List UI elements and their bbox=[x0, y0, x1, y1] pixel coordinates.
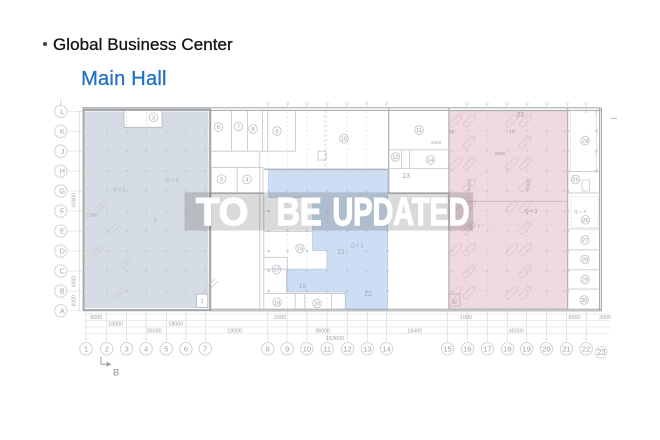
svg-text:6000: 6000 bbox=[72, 276, 78, 287]
svg-text:11: 11 bbox=[416, 128, 422, 134]
svg-text:8: 8 bbox=[266, 345, 270, 354]
svg-text:2: 2 bbox=[105, 345, 109, 354]
svg-text:22: 22 bbox=[364, 291, 372, 298]
svg-text:L: L bbox=[60, 107, 64, 116]
svg-text:27: 27 bbox=[582, 238, 588, 244]
svg-text:16: 16 bbox=[463, 345, 472, 354]
svg-text:26: 26 bbox=[582, 218, 588, 224]
svg-text:14: 14 bbox=[382, 345, 391, 354]
svg-text:Q = 3: Q = 3 bbox=[166, 178, 179, 184]
svg-text:1900: 1900 bbox=[495, 151, 506, 157]
svg-text:14: 14 bbox=[427, 158, 434, 164]
svg-text:45°: 45° bbox=[449, 130, 456, 135]
svg-text:20: 20 bbox=[314, 302, 320, 308]
svg-text:18: 18 bbox=[274, 300, 280, 306]
svg-text:9: 9 bbox=[285, 345, 289, 354]
svg-text:6000: 6000 bbox=[90, 315, 102, 321]
svg-text:6: 6 bbox=[184, 345, 188, 354]
svg-text:E: E bbox=[60, 227, 65, 236]
svg-text:18: 18 bbox=[503, 345, 512, 354]
svg-text:A: A bbox=[60, 306, 65, 315]
svg-text:21: 21 bbox=[337, 249, 345, 256]
svg-text:36000: 36000 bbox=[315, 328, 330, 334]
svg-text:36000: 36000 bbox=[147, 328, 162, 334]
svg-text:Q = 3: Q = 3 bbox=[525, 209, 538, 215]
svg-text:2,550: 2,550 bbox=[86, 213, 98, 219]
svg-text:25: 25 bbox=[572, 178, 578, 184]
svg-text:G: G bbox=[59, 187, 65, 196]
svg-text:J: J bbox=[60, 147, 64, 156]
svg-text:D: D bbox=[60, 247, 65, 256]
svg-text:6000: 6000 bbox=[72, 295, 78, 306]
svg-text:18000: 18000 bbox=[108, 321, 123, 327]
svg-text:19: 19 bbox=[522, 345, 531, 354]
svg-text:B: B bbox=[60, 287, 65, 296]
svg-text:1: 1 bbox=[84, 345, 88, 354]
svg-text:3: 3 bbox=[152, 115, 155, 121]
svg-text:21: 21 bbox=[562, 345, 571, 354]
svg-text:18400: 18400 bbox=[407, 328, 422, 334]
svg-text:22: 22 bbox=[582, 345, 591, 354]
svg-text:23: 23 bbox=[597, 348, 606, 357]
svg-text:Q = 3: Q = 3 bbox=[113, 188, 126, 194]
svg-text:153600: 153600 bbox=[326, 336, 344, 342]
svg-text:4: 4 bbox=[144, 345, 149, 354]
svg-text:TO: TO bbox=[196, 191, 248, 234]
svg-text:32: 32 bbox=[451, 299, 457, 305]
svg-text:15: 15 bbox=[443, 345, 452, 354]
svg-text:60000: 60000 bbox=[525, 178, 530, 191]
svg-text:2: 2 bbox=[154, 219, 157, 225]
svg-text:13: 13 bbox=[363, 345, 372, 354]
svg-text:Q = 3: Q = 3 bbox=[574, 209, 586, 215]
svg-text:24: 24 bbox=[582, 139, 589, 145]
svg-text:F: F bbox=[60, 207, 65, 216]
svg-text:12: 12 bbox=[343, 345, 352, 354]
svg-text:12: 12 bbox=[392, 155, 398, 161]
svg-text:10: 10 bbox=[303, 345, 312, 354]
svg-text:4: 4 bbox=[245, 178, 249, 184]
svg-text:19: 19 bbox=[299, 283, 307, 290]
svg-text:20: 20 bbox=[542, 345, 551, 354]
svg-text:30: 30 bbox=[581, 298, 587, 304]
svg-text:18000: 18000 bbox=[168, 321, 183, 327]
svg-text:45000: 45000 bbox=[509, 328, 524, 334]
svg-text:UPDATED: UPDATED bbox=[333, 191, 470, 234]
svg-text:23: 23 bbox=[517, 113, 524, 119]
svg-text:7: 7 bbox=[203, 345, 207, 354]
svg-text:2000: 2000 bbox=[274, 315, 286, 321]
svg-text:K: K bbox=[60, 127, 65, 136]
svg-text:18000: 18000 bbox=[227, 328, 242, 334]
svg-text:3000: 3000 bbox=[599, 315, 611, 321]
svg-text:1: 1 bbox=[201, 299, 204, 305]
svg-text:13: 13 bbox=[402, 173, 410, 180]
svg-text:15: 15 bbox=[297, 247, 303, 253]
svg-text:5: 5 bbox=[164, 345, 168, 354]
svg-text:9: 9 bbox=[275, 129, 278, 135]
svg-text:6000: 6000 bbox=[569, 315, 581, 321]
svg-text:B: B bbox=[113, 368, 119, 379]
svg-text:11: 11 bbox=[323, 345, 331, 354]
svg-text:28: 28 bbox=[582, 258, 588, 264]
svg-text:60000: 60000 bbox=[467, 178, 472, 191]
svg-text:10: 10 bbox=[341, 137, 347, 143]
svg-text:7: 7 bbox=[237, 125, 240, 131]
svg-text:1000: 1000 bbox=[431, 140, 442, 146]
svg-text:3: 3 bbox=[124, 345, 128, 354]
svg-text:C: C bbox=[60, 267, 66, 276]
svg-text:1000: 1000 bbox=[460, 315, 472, 321]
svg-text:45°: 45° bbox=[509, 129, 516, 134]
svg-text:Q = 3: Q = 3 bbox=[351, 244, 364, 250]
svg-text:BE: BE bbox=[276, 191, 321, 234]
svg-text:8: 8 bbox=[251, 127, 254, 133]
svg-text:H: H bbox=[60, 167, 65, 176]
svg-text:5: 5 bbox=[220, 177, 223, 183]
svg-text:17: 17 bbox=[273, 268, 279, 274]
svg-text:60000: 60000 bbox=[72, 193, 78, 207]
svg-text:29: 29 bbox=[582, 278, 588, 284]
svg-text:6: 6 bbox=[217, 125, 220, 131]
svg-text:17: 17 bbox=[483, 345, 492, 354]
